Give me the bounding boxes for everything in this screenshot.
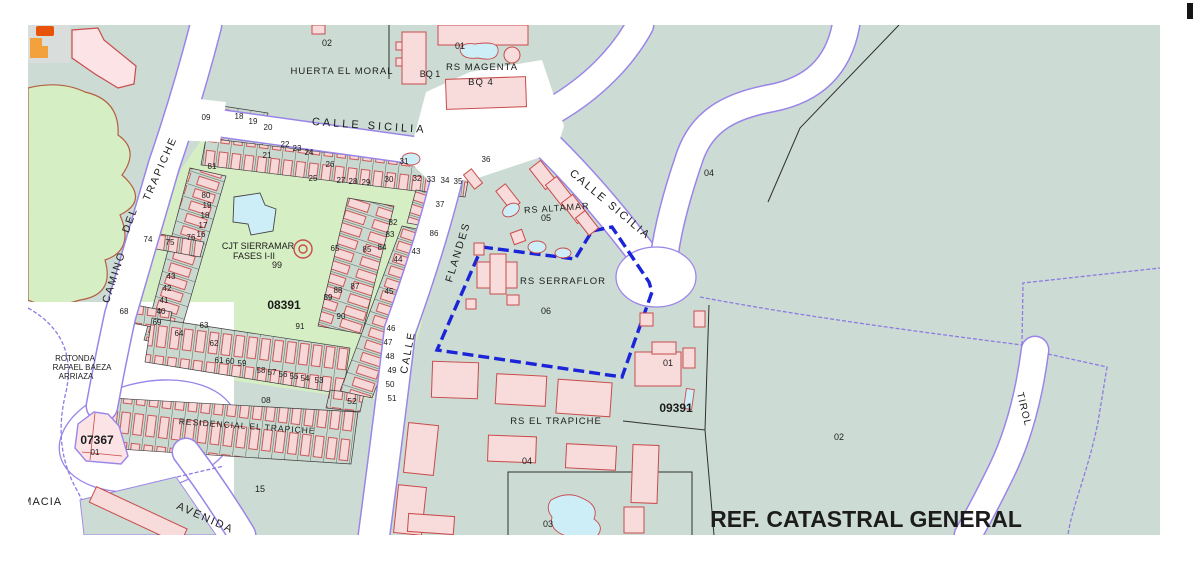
area-name-label: 03 (543, 519, 553, 529)
parcel-number-label: 27 (337, 176, 346, 185)
cadastral-map-viewport: CALLE SICILIACALLE SICILIACAMINODELTRAPI… (0, 0, 1200, 561)
area-name-label: REF. CATASTRAL GENERAL (710, 506, 1022, 532)
parcel-number-label: 43 (412, 247, 421, 256)
parcel-number-label: 55 (290, 372, 299, 381)
parcel-number-label: 32 (413, 174, 422, 183)
parcel-number-label: 19 (249, 117, 258, 126)
parcel-number-label: 18 (235, 112, 244, 121)
area-name-label: BQ 1 (420, 69, 441, 79)
roundabout-sicilia (616, 247, 696, 307)
parcel-number-label: 76 (187, 233, 196, 242)
parcel-number-label: 75 (166, 238, 175, 247)
page-corner-mark (1187, 3, 1193, 19)
area-name-label: RS EL TRAPICHE (510, 416, 602, 427)
street-name-label: FARMACIA (0, 496, 62, 508)
parcel-number-label: 29 (362, 178, 371, 187)
area-name-label: 02 (322, 38, 332, 48)
parcel-number-label: 21 (263, 151, 272, 160)
parcel-number-label: 37 (436, 200, 445, 209)
parcel-number-label: 68 (120, 307, 129, 316)
parcel-number-label: 18 (201, 211, 210, 220)
parcel-number-label: 85 (363, 245, 372, 254)
parcel-number-label: 17 (199, 221, 208, 230)
parcel-number-label: 88 (334, 286, 343, 295)
parcel-number-label: 81 (208, 162, 217, 171)
parcel-number-label: 09 (202, 113, 211, 122)
parcel-number-label: 50 (386, 380, 395, 389)
parcel-number-label: 47 (384, 338, 393, 347)
orange-marker-icon (36, 26, 54, 36)
parcel-number-label: 74 (144, 235, 153, 244)
area-name-label: ARRIAZA (59, 372, 94, 381)
block-code-label: 08391 (267, 298, 301, 312)
area-name-label: 52 (347, 396, 357, 406)
area-name-label: HUERTA EL MORAL (291, 66, 394, 77)
parcel-number-label: 35 (454, 177, 463, 186)
parcel-number-label: 69 (153, 318, 162, 327)
parcel-number-label: 62 (210, 339, 219, 348)
parcel-number-label: 16 (197, 230, 206, 239)
map-corner-symbols (28, 25, 70, 63)
parcel-number-label: 54 (301, 374, 310, 383)
block-code-label: 09391 (659, 401, 693, 415)
area-name-label: FASES I-II (233, 251, 275, 261)
magenta-pool (460, 43, 498, 59)
parcel-number-label: 40 (157, 307, 166, 316)
parcel-number-label: 24 (305, 148, 314, 157)
parcel-number-label: 86 (430, 229, 439, 238)
area-name-label: 04 (522, 456, 532, 466)
parcel-number-label: 56 (279, 370, 288, 379)
area-name-label: 99 (272, 260, 282, 270)
parcel-number-label: 44 (394, 255, 403, 264)
parcel-number-label: 49 (388, 366, 397, 375)
cadastral-map-canvas[interactable]: CALLE SICILIACALLE SICILIACAMINODELTRAPI… (0, 0, 1200, 561)
parcel-number-label: 28 (349, 177, 358, 186)
parcel-number-label: 42 (163, 284, 172, 293)
parcel-number-label: 80 (202, 191, 211, 200)
parcel-number-label: 64 (175, 329, 184, 338)
area-name-label: 05 (541, 213, 551, 223)
parcel-number-label: 63 (200, 321, 209, 330)
parcel-number-label: 53 (315, 376, 324, 385)
parcel-number-label: 23 (293, 144, 302, 153)
area-name-label: 01 (455, 41, 465, 51)
area-name-label: RS MAGENTA (446, 62, 518, 73)
area-name-label: CJT SIERRAMAR (222, 241, 295, 251)
parcel-number-label: 65 (331, 244, 340, 253)
parcel-number-label: 45 (385, 287, 394, 296)
parcel-number-label: 33 (427, 175, 436, 184)
area-name-label: 15 (255, 484, 265, 494)
parcel-number-label: 84 (378, 243, 387, 252)
area-name-label: 06 (541, 306, 551, 316)
parcel-number-label: 31 (400, 157, 409, 166)
block-code-label: 07367 (80, 433, 114, 447)
parcel-number-label: 01 (91, 448, 100, 457)
parcel-number-label: 61 (215, 356, 224, 365)
parcel-number-label: 91 (296, 322, 305, 331)
parcel-number-label: 19 (203, 201, 212, 210)
parcel-number-label: 20 (264, 123, 273, 132)
area-name-label: ROTONDA (55, 354, 96, 363)
area-name-label: 02 (834, 432, 844, 442)
parcel-number-label: 30 (385, 175, 394, 184)
parcel-number-label: 48 (386, 352, 395, 361)
parcel-number-label: 58 (257, 366, 266, 375)
parcel-number-label: 60 (226, 357, 235, 366)
area-name-label: RS SERRAFLOR (520, 276, 606, 287)
parcel-number-label: 82 (389, 218, 398, 227)
parcel-number-label: 41 (160, 296, 169, 305)
area-name-label: 08 (261, 395, 271, 405)
area-name-label: RAFAEL BAEZA (53, 363, 113, 372)
parcel-number-label: 25 (309, 174, 318, 183)
parcel-number-label: 46 (387, 324, 396, 333)
parcel-number-label: 34 (441, 176, 450, 185)
area-name-label: 04 (704, 168, 714, 178)
parcel-number-label: 59 (238, 359, 247, 368)
parcel-number-label: 90 (337, 312, 346, 321)
area-name-label: BQ 4 (468, 77, 494, 88)
parcel-number-label: 36 (482, 155, 491, 164)
parcel-number-label: 26 (326, 160, 335, 169)
parcel-number-label: 87 (351, 282, 360, 291)
parcel-number-label: 89 (324, 293, 333, 302)
parcel-number-label: 57 (268, 368, 277, 377)
parcel-number-label: 22 (281, 140, 290, 149)
parcel-number-label: 43 (167, 272, 176, 281)
parcel-number-label: 51 (388, 394, 397, 403)
area-name-label: 01 (663, 358, 673, 368)
parcel-number-label: 83 (386, 230, 395, 239)
